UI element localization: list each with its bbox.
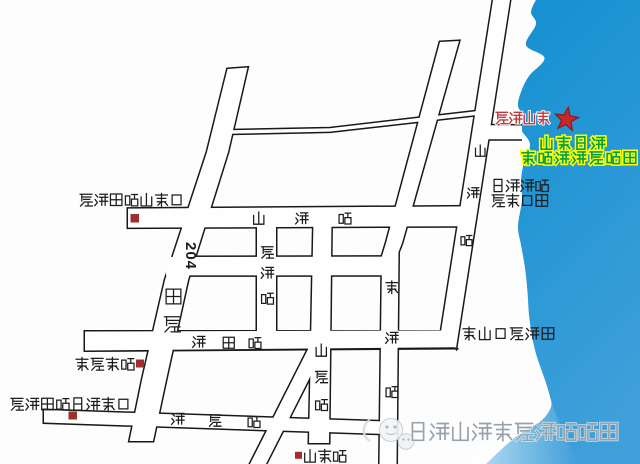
svg-text:204: 204	[182, 242, 199, 270]
